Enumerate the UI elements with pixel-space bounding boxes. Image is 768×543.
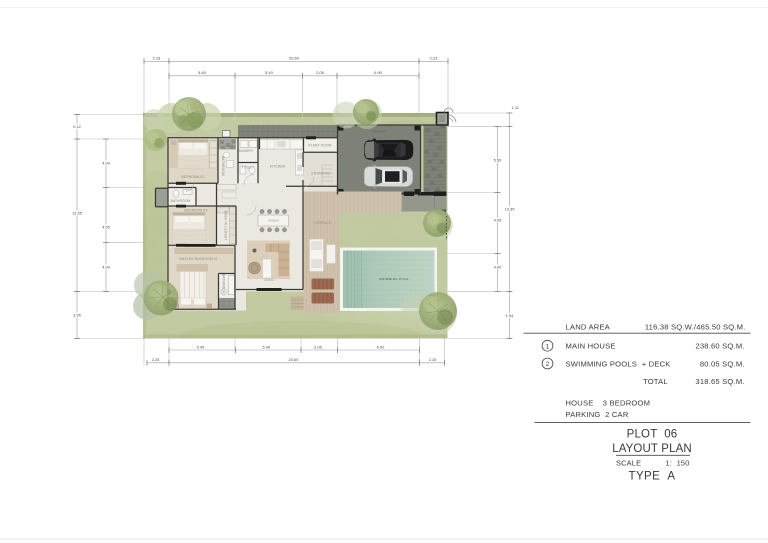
- svg-text:20.60: 20.60: [289, 55, 300, 60]
- svg-text:4.55: 4.55: [102, 225, 111, 230]
- svg-text:1: 150: 1: 150: [666, 459, 690, 468]
- svg-text:BATHROOM: BATHROOM: [222, 274, 226, 294]
- svg-text:SWIMMING POOLS + DECK: SWIMMING POOLS + DECK: [566, 359, 671, 368]
- svg-text:LIVING: LIVING: [264, 278, 275, 282]
- svg-text:BEDROOM 03: BEDROOM 03: [185, 209, 208, 213]
- svg-text:TYPE A: TYPE A: [629, 470, 676, 482]
- svg-text:4.95: 4.95: [494, 218, 503, 223]
- svg-text:PLANT ROOM: PLANT ROOM: [308, 144, 331, 148]
- svg-text:SWIMMING POOL: SWIMMING POOL: [379, 277, 409, 281]
- svg-text:4.00: 4.00: [102, 265, 111, 270]
- svg-text:LAYOUT PLAN: LAYOUT PLAN: [612, 443, 692, 455]
- svg-text:TOTAL: TOTAL: [643, 377, 668, 386]
- svg-text:2.15: 2.15: [429, 357, 438, 362]
- svg-text:HOUSE 3 BEDROOM: HOUSE 3 BEDROOM: [566, 398, 651, 407]
- svg-text:LAND AREA: LAND AREA: [566, 323, 611, 332]
- svg-text:5.40: 5.40: [262, 344, 271, 349]
- svg-text:5.45: 5.45: [198, 70, 207, 75]
- svg-text:6.90: 6.90: [374, 70, 383, 75]
- svg-text:WALK-IN CLOSET: WALK-IN CLOSET: [224, 211, 228, 241]
- svg-text:BATHROOM: BATHROOM: [221, 156, 225, 176]
- svg-text:3.95: 3.95: [73, 313, 82, 318]
- svg-text:1: 1: [546, 343, 550, 350]
- svg-text:PARKING 2 CAR: PARKING 2 CAR: [566, 410, 629, 419]
- svg-text:4.00: 4.00: [102, 161, 111, 166]
- svg-text:13.35: 13.35: [504, 207, 515, 212]
- svg-text:80.05 SQ.M.: 80.05 SQ.M.: [700, 359, 745, 368]
- svg-text:2.18: 2.18: [153, 55, 162, 60]
- svg-text:12.55: 12.55: [72, 211, 83, 216]
- svg-text:MAIN HOUSE: MAIN HOUSE: [566, 342, 616, 351]
- svg-text:2.12: 2.12: [73, 124, 82, 129]
- svg-text:20.60: 20.60: [288, 357, 299, 362]
- svg-text:MASTER BEDROOM 01: MASTER BEDROOM 01: [179, 257, 217, 261]
- svg-text:BATHROOM: BATHROOM: [171, 199, 191, 203]
- svg-text:BEDROOM 02: BEDROOM 02: [182, 175, 205, 179]
- svg-text:LAUNDRY: LAUNDRY: [237, 149, 254, 153]
- svg-text:6.90: 6.90: [377, 344, 386, 349]
- svg-text:KITCHEN: KITCHEN: [270, 165, 286, 169]
- svg-text:1.11: 1.11: [512, 105, 520, 110]
- svg-text:238.60 SQ.M.: 238.60 SQ.M.: [695, 342, 744, 351]
- svg-text:5.50: 5.50: [494, 158, 503, 163]
- svg-text:PLOT 06: PLOT 06: [627, 428, 678, 440]
- svg-text:GARAGE: GARAGE: [371, 130, 386, 134]
- svg-text:5.40: 5.40: [265, 70, 274, 75]
- svg-text:116.38 SQ.W./465.50 SQ.M.: 116.38 SQ.W./465.50 SQ.M.: [645, 323, 746, 332]
- svg-text:318.65 SQ.M.: 318.65 SQ.M.: [695, 377, 744, 386]
- svg-text:5.45: 5.45: [197, 344, 206, 349]
- svg-text:TOILET: TOILET: [242, 166, 254, 170]
- svg-text:2.25: 2.25: [152, 357, 161, 362]
- svg-text:DINING: DINING: [268, 219, 279, 223]
- svg-text:TERRACE: TERRACE: [314, 221, 331, 225]
- svg-text:2.23: 2.23: [430, 55, 439, 60]
- svg-text:ENTRANCE: ENTRANCE: [311, 172, 330, 176]
- svg-text:4.00: 4.00: [494, 265, 503, 270]
- svg-text:2.05: 2.05: [314, 344, 323, 349]
- svg-text:1.94: 1.94: [506, 313, 515, 318]
- svg-text:SCALE: SCALE: [616, 459, 641, 468]
- svg-text:2.05: 2.05: [316, 70, 325, 75]
- svg-text:2: 2: [546, 361, 550, 368]
